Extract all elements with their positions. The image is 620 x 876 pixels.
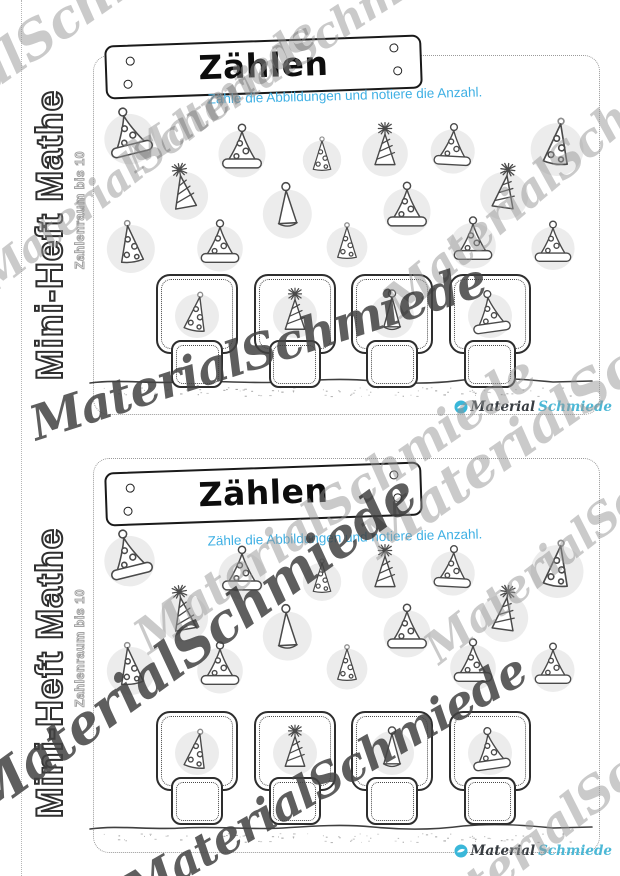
- answer-box[interactable]: [269, 777, 321, 825]
- count-box-group: [449, 274, 531, 390]
- booklet-subtitle: Zahlenraum bis 10: [72, 583, 88, 713]
- page-1: Mini-Heft Mathe Zahlenraum bis 10 Zählen…: [0, 0, 620, 438]
- logo-text-secondary: Schmiede: [538, 399, 612, 415]
- party-hat-dots-plain: [98, 631, 162, 698]
- party-hat-dots-plain: [300, 553, 345, 601]
- party-hat-dots-brim: [446, 634, 499, 691]
- count-box-group: [351, 711, 433, 827]
- party-hat-dots-plain: [323, 217, 371, 268]
- count-boxes-row: [88, 711, 598, 831]
- party-hat-dots-brim: [426, 539, 480, 597]
- answer-box[interactable]: [171, 777, 223, 825]
- answer-box[interactable]: [171, 340, 223, 388]
- party-hat-dots-brim: [193, 215, 246, 272]
- logo-drop-icon: [454, 400, 468, 414]
- answer-box-dotted-frame: [468, 782, 511, 821]
- answer-box-dotted-frame: [371, 345, 414, 384]
- page-2: Mini-Heft Mathe Zahlenraum bis 10 Zählen…: [0, 438, 620, 876]
- party-hat-dots-brim: [528, 638, 578, 692]
- logo-text-secondary: Schmiede: [538, 843, 612, 859]
- answer-box[interactable]: [464, 777, 516, 825]
- party-hat-plain: [257, 176, 317, 240]
- party-hat-dots-plain: [98, 209, 162, 276]
- booklet-title: Mini-Heft Mathe: [25, 523, 75, 823]
- party-hat-dots-brim: [215, 119, 270, 178]
- party-hat-dots-brim: [446, 212, 499, 269]
- materialschmiede-logo: MaterialSchmiede: [454, 399, 612, 415]
- party-hat-stripes-pom: [358, 120, 411, 177]
- party-hat-dots-brim: [92, 517, 164, 592]
- answer-box-dotted-frame: [468, 345, 511, 384]
- worksheet-title: Zählen: [106, 464, 420, 523]
- answer-box-dotted-frame: [273, 345, 316, 384]
- party-hat-dots-plain: [300, 131, 345, 179]
- count-box-group: [449, 711, 531, 827]
- party-hat-dots-plain: [323, 639, 371, 690]
- party-hat-dots-brim: [215, 541, 270, 600]
- answer-box-dotted-frame: [176, 782, 219, 821]
- booklet-title: Mini-Heft Mathe: [25, 85, 75, 385]
- count-box-group: [254, 711, 336, 827]
- count-boxes-row: [88, 274, 598, 394]
- party-hat-stripes-pom: [269, 285, 321, 341]
- worksheet-preview: Mini-Heft Mathe Zahlenraum bis 10 Zählen…: [0, 0, 620, 876]
- answer-box[interactable]: [366, 340, 418, 388]
- answer-box-dotted-frame: [176, 345, 219, 384]
- count-box-group: [156, 711, 238, 827]
- party-hat-plain: [257, 598, 317, 662]
- party-hat-dots-brim: [426, 117, 480, 175]
- logo-text-primary: Material: [471, 843, 536, 859]
- answer-box-dotted-frame: [371, 782, 414, 821]
- party-hat-plain: [366, 722, 418, 778]
- party-hat-dots-brim: [380, 599, 435, 658]
- answer-box[interactable]: [269, 340, 321, 388]
- logo-text-primary: Material: [471, 399, 536, 415]
- party-hat-stripes-pom: [358, 542, 411, 599]
- party-hat-plain: [366, 285, 418, 341]
- party-hat-dots-brim: [460, 719, 519, 782]
- answer-box-dotted-frame: [273, 782, 316, 821]
- count-box-group: [351, 274, 433, 390]
- hat-field: [88, 527, 598, 697]
- title-banner: Zählen: [104, 461, 423, 526]
- party-hat-dots-brim: [193, 637, 246, 694]
- count-box-group: [156, 274, 238, 390]
- answer-box[interactable]: [366, 777, 418, 825]
- party-hat-dots-brim: [460, 282, 519, 345]
- party-hat-dots-plain: [167, 281, 228, 345]
- party-hat-dots-brim: [380, 177, 435, 236]
- answer-box[interactable]: [464, 340, 516, 388]
- party-hat-dots-plain: [167, 718, 228, 782]
- count-box-group: [254, 274, 336, 390]
- party-hat-dots-brim: [528, 216, 578, 270]
- booklet-subtitle: Zahlenraum bis 10: [72, 145, 88, 275]
- party-hat-stripes-pom: [269, 722, 321, 778]
- logo-drop-icon: [454, 844, 468, 858]
- materialschmiede-logo: MaterialSchmiede: [454, 843, 612, 859]
- hat-field: [88, 105, 598, 275]
